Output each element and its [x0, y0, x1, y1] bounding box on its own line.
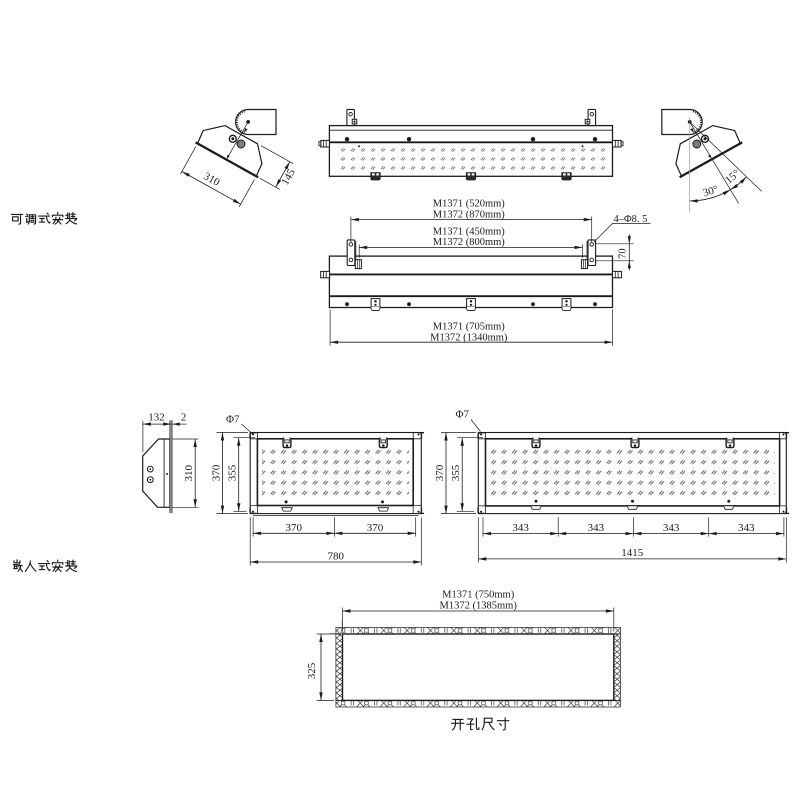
svg-text:M1372 (800mm): M1372 (800mm) [433, 237, 506, 248]
svg-text:2: 2 [181, 412, 187, 424]
svg-text:70: 70 [618, 248, 629, 259]
svg-text:370: 370 [211, 464, 223, 481]
svg-text:1415: 1415 [621, 547, 644, 559]
svg-text:M1371 (450mm): M1371 (450mm) [433, 226, 506, 237]
svg-text:M1371 (520mm): M1371 (520mm) [433, 199, 506, 210]
svg-text:325: 325 [306, 662, 318, 679]
svg-text:310: 310 [183, 464, 195, 481]
svg-text:M1371 (705mm): M1371 (705mm) [433, 322, 506, 333]
svg-text:Φ7: Φ7 [456, 409, 470, 421]
svg-text:343: 343 [663, 522, 680, 534]
svg-text:370: 370 [367, 522, 384, 534]
svg-text:M1372 (1340mm): M1372 (1340mm) [430, 333, 508, 344]
svg-text:343: 343 [738, 522, 755, 534]
svg-text:132: 132 [148, 412, 165, 424]
svg-text:M1371 (750mm): M1371 (750mm) [442, 589, 515, 600]
svg-text:370: 370 [434, 464, 446, 481]
svg-text:343: 343 [512, 522, 529, 534]
svg-text:370: 370 [285, 522, 302, 534]
svg-text:355: 355 [227, 464, 239, 481]
svg-text:Φ7: Φ7 [226, 414, 240, 426]
svg-text:M1372 (1385mm): M1372 (1385mm) [440, 601, 518, 612]
svg-text:343: 343 [588, 522, 605, 534]
svg-text:M1372 (870mm): M1372 (870mm) [433, 209, 506, 220]
svg-text:355: 355 [450, 464, 462, 481]
svg-text:780: 780 [327, 551, 344, 563]
